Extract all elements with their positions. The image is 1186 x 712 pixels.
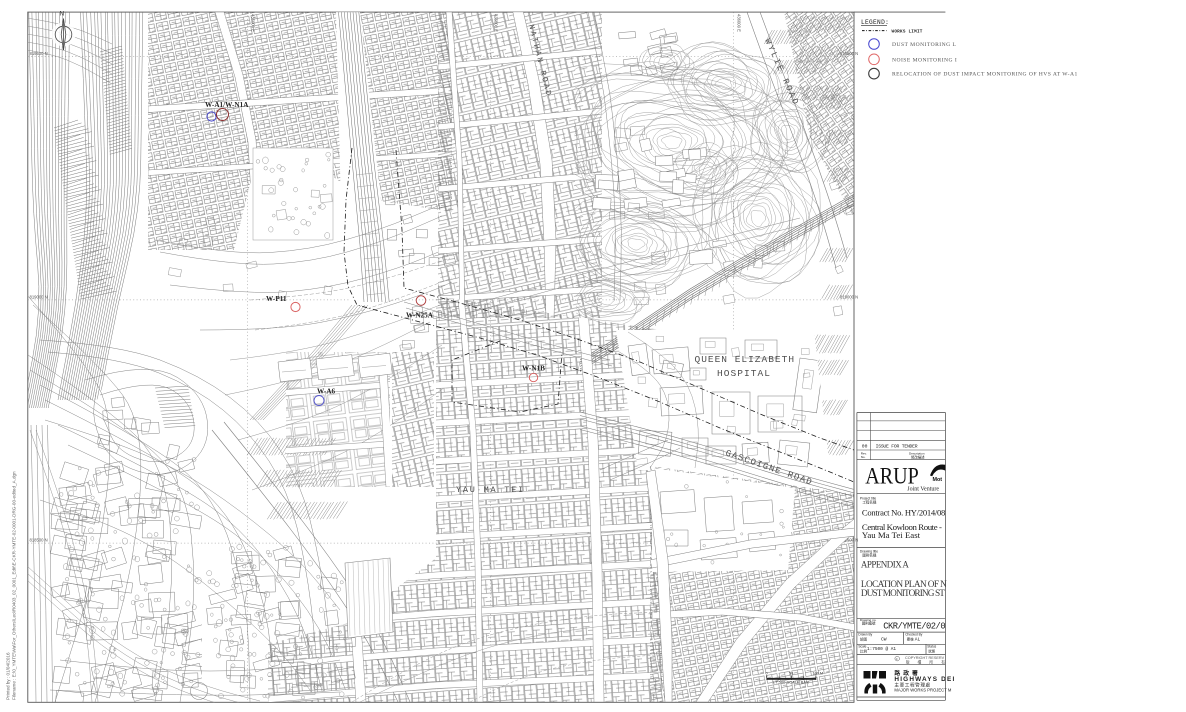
svg-text:Status: Status — [927, 645, 936, 649]
svg-text:AL: AL — [915, 636, 921, 642]
svg-text:CW: CW — [881, 636, 887, 642]
svg-text:狀態: 狀態 — [928, 649, 936, 654]
svg-text:修改描述: 修改描述 — [911, 454, 925, 459]
svg-text:Filename : E:\0_YMTE\Wa\For_Ot: Filename : E:\0_YMTE\Wa\For_Others\Leo\R… — [12, 471, 17, 700]
svg-text:工程名稱: 工程名稱 — [862, 499, 876, 504]
svg-text:HOSPITAL: HOSPITAL — [717, 368, 771, 379]
svg-text:Checked By: Checked By — [905, 632, 923, 636]
svg-text:W-P11: W-P11 — [266, 295, 287, 303]
svg-text:Scale: Scale — [858, 645, 866, 649]
svg-text:Drawn By: Drawn By — [858, 632, 872, 636]
svg-text:NOISE MONITORING I: NOISE MONITORING I — [892, 57, 957, 63]
svg-text:819000 N: 819000 N — [840, 294, 858, 299]
svg-text:Mot: Mot — [933, 477, 943, 483]
svg-text:Printed by : 01/04/2016: Printed by : 01/04/2016 — [6, 652, 11, 700]
svg-text:圖則名稱: 圖則名稱 — [862, 552, 876, 557]
svg-text:圖則編號: 圖則編號 — [862, 621, 876, 626]
svg-text:818500 N: 818500 N — [30, 538, 48, 543]
svg-text:00: 00 — [862, 444, 868, 450]
svg-text:100 M: 100 M — [813, 672, 824, 676]
svg-text:APPENDIX A: APPENDIX A — [861, 559, 910, 569]
svg-text:W-A6: W-A6 — [317, 388, 336, 396]
svg-text:WORKS LIMIT: WORKS LIMIT — [892, 30, 923, 35]
svg-text:W-N1B: W-N1B — [522, 365, 545, 373]
svg-text:Yau Ma Tei East: Yau Ma Tei East — [862, 530, 921, 540]
svg-text:YAU MA TEI: YAU MA TEI — [456, 485, 525, 495]
svg-text:DUST MONITORING ST: DUST MONITORING ST — [861, 589, 945, 599]
svg-text:1:7,500 SCALE BAR: 1:7,500 SCALE BAR — [772, 680, 809, 685]
svg-text:CKR/YMTE/02/0: CKR/YMTE/02/0 — [883, 622, 945, 632]
svg-text:版 權 所 有: 版 權 所 有 — [906, 659, 949, 664]
svg-text:W-A1/W-N1A: W-A1/W-N1A — [205, 101, 249, 109]
svg-text:c: c — [896, 657, 898, 661]
svg-text:ISSUE FOR TENDER: ISSUE FOR TENDER — [876, 444, 918, 450]
svg-text:1:7500 @ A1: 1:7500 @ A1 — [867, 647, 896, 652]
svg-text:覆核: 覆核 — [907, 636, 915, 641]
svg-text:Contract No. HY/2014/08: Contract No. HY/2014/08 — [862, 508, 945, 518]
svg-text:RELOCATION OF DUST IMPACT MONI: RELOCATION OF DUST IMPACT MONITORING OF … — [892, 72, 1078, 78]
svg-text:No.: No. — [861, 455, 866, 459]
svg-text:50: 50 — [789, 672, 793, 676]
svg-text:819000 N: 819000 N — [30, 294, 48, 299]
svg-text:0: 0 — [766, 672, 768, 676]
svg-text:W-N25A: W-N25A — [406, 312, 434, 320]
svg-text:N: N — [60, 11, 65, 18]
svg-text:QUEEN ELIZABETH: QUEEN ELIZABETH — [695, 354, 796, 365]
svg-text:MAJOR WORKS PROJECT M: MAJOR WORKS PROJECT M — [894, 687, 951, 692]
svg-text:436000 E: 436000 E — [736, 14, 741, 32]
svg-text:LEGEND:: LEGEND: — [861, 19, 889, 26]
svg-text:繪圖: 繪圖 — [860, 636, 868, 641]
svg-text:Joint Venture: Joint Venture — [907, 486, 939, 492]
svg-text:DUST MONITORING L: DUST MONITORING L — [892, 42, 956, 48]
